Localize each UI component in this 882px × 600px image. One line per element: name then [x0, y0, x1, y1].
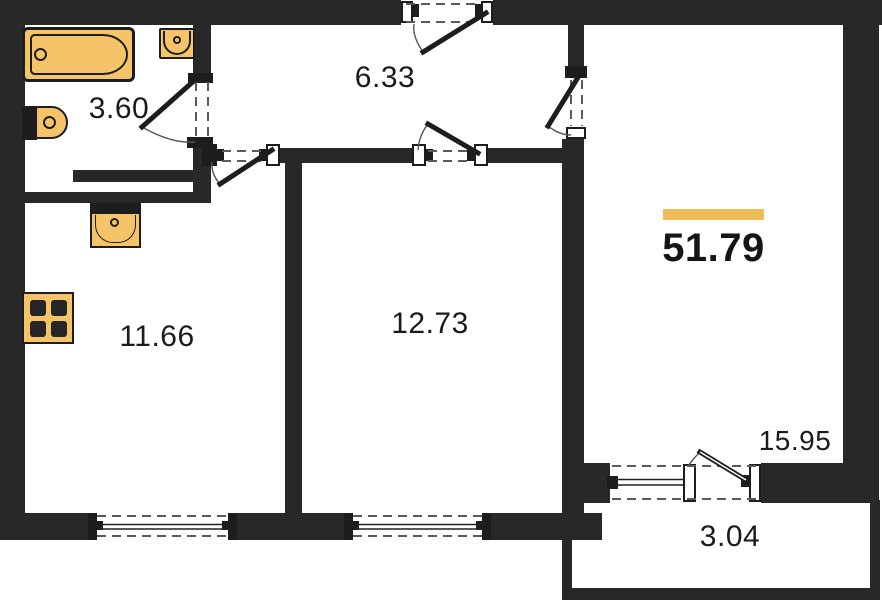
stove [22, 292, 74, 344]
living-room-area-label: 15.95 [754, 425, 836, 457]
kitchen-window-post-right [228, 513, 237, 540]
bathtub [22, 27, 135, 82]
entrance-nub-right [475, 4, 481, 17]
bathroom-area-label: 3.60 [84, 92, 154, 126]
stove-top [22, 292, 74, 344]
balcony-wall-right [870, 500, 880, 600]
living-door-leaf [548, 79, 577, 126]
wall-bathroom-bottom [73, 170, 197, 182]
door-window-overlay [0, 0, 882, 600]
entrance-frame-right [481, 1, 493, 23]
bedroom-window-post-right [482, 513, 491, 540]
bedroom-area-label: 12.73 [389, 307, 471, 341]
wall-right [843, 25, 879, 503]
balcony-wall-bottom [562, 588, 880, 600]
wall-hallway-bottom-mid [280, 148, 412, 163]
stove-burner-2 [51, 300, 67, 316]
kitchen-window-nub-right [222, 521, 228, 530]
balcony-area-label: 3.04 [694, 520, 766, 554]
total-area-highlight-bar [663, 209, 764, 220]
kitchen-sink [90, 203, 141, 248]
bedroom-door-nub-left [426, 149, 433, 161]
wall-kitchen-top [25, 192, 207, 203]
kitchen-window-post-left [88, 513, 97, 540]
bedroom-window-nub-right [476, 521, 482, 530]
kitchen-door-nub-right [259, 149, 266, 161]
living-door-hinge [565, 66, 587, 78]
living-door-frame [566, 127, 586, 139]
bathroom-sink [159, 28, 195, 59]
balcony-door-frame-right [749, 464, 761, 502]
bedroom-door-nub-right [467, 149, 474, 161]
kitchen-sink-drain [110, 218, 119, 227]
door-swing-arcs [142, 24, 700, 465]
wall-bottom-c [491, 513, 602, 540]
entrance-nub-left [413, 4, 419, 17]
wall-top-left [0, 0, 401, 25]
wall-bottom-b [237, 513, 344, 540]
entrance-frame-left [401, 1, 413, 23]
wall-hallway-bottom-right [488, 148, 570, 163]
stove-burner-3 [30, 321, 46, 337]
wall-bottom-a [0, 513, 88, 540]
stove-burner-1 [30, 300, 46, 316]
entrance-door-leaf [423, 13, 486, 52]
kitchen-door-frame [266, 144, 280, 166]
wall-kitchen-bedroom [285, 163, 302, 513]
bedroom-door-frame-right [474, 144, 488, 166]
wall-bathroom-right-upper [193, 25, 211, 77]
kitchen-door-nub-left [217, 149, 224, 161]
balcony-door-leaf [700, 452, 746, 480]
hallway-area-label: 6.33 [350, 61, 420, 95]
stove-burner-4 [51, 321, 67, 337]
hallway-wall-post [202, 144, 217, 166]
balcony-door-frame-left [683, 464, 696, 502]
bathroom-sink-drain [173, 36, 181, 44]
kitchen-window-nub-left [97, 521, 103, 530]
wall-living-left-lower [562, 139, 584, 540]
bedroom-window-post-left [344, 513, 353, 540]
balcony-door-leaf-inner [700, 452, 746, 480]
wall-balcony-band-right [761, 463, 843, 503]
wall-living-left-upper [568, 25, 584, 67]
balcony-window-nub [607, 476, 618, 489]
total-area-label: 51.79 [656, 226, 771, 271]
bathroom-door-hinge [188, 73, 213, 83]
bathtub-drain [34, 48, 47, 61]
wall-top-right [493, 0, 882, 25]
toilet [22, 106, 68, 140]
bedroom-door-frame-left [412, 144, 426, 166]
wall-left [0, 25, 25, 540]
bedroom-window-nub-left [353, 521, 359, 530]
kitchen-area-label: 11.66 [116, 320, 198, 354]
toilet-drain [43, 116, 56, 129]
floor-plan: 3.60 6.33 11.66 12.73 15.95 3.04 51.79 [0, 0, 882, 600]
